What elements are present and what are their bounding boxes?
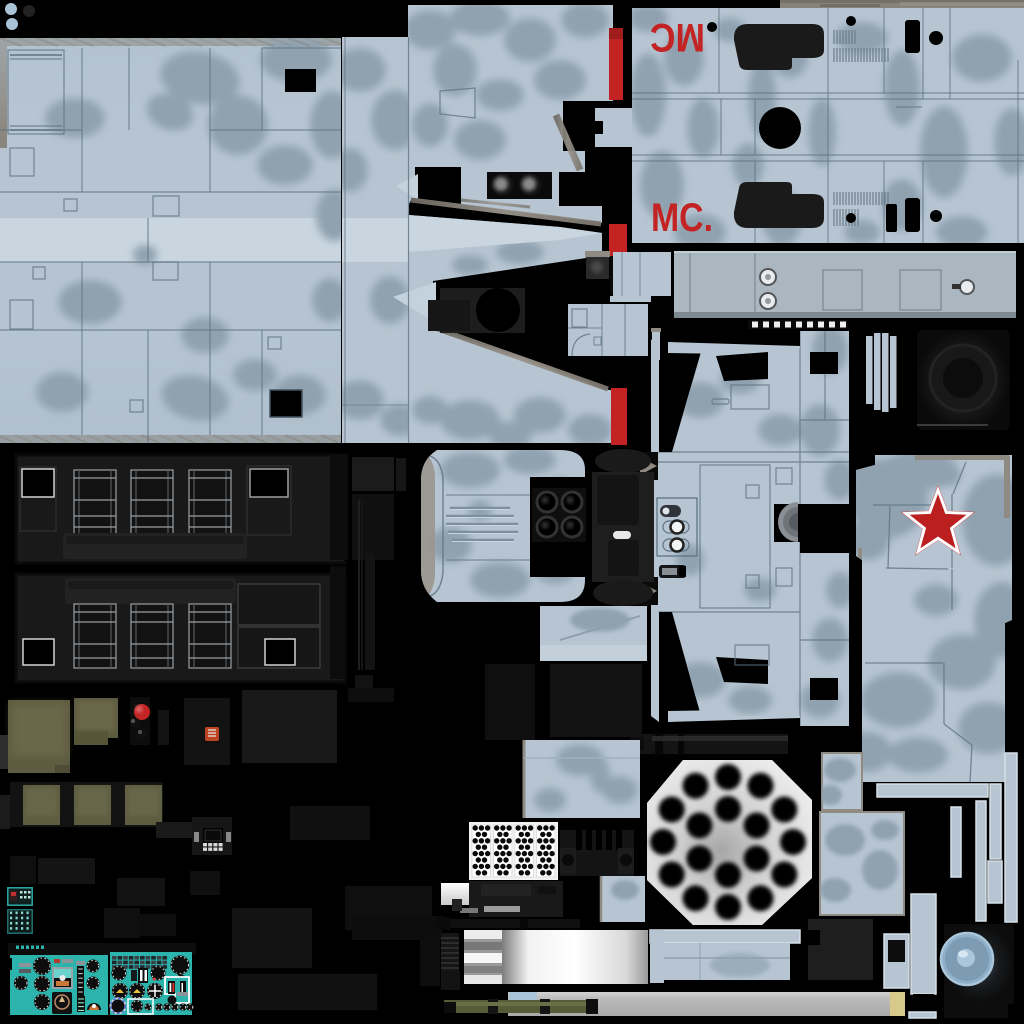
svg-text:MC.: MC. [651,196,713,240]
svg-text:MC: MC [650,15,705,59]
